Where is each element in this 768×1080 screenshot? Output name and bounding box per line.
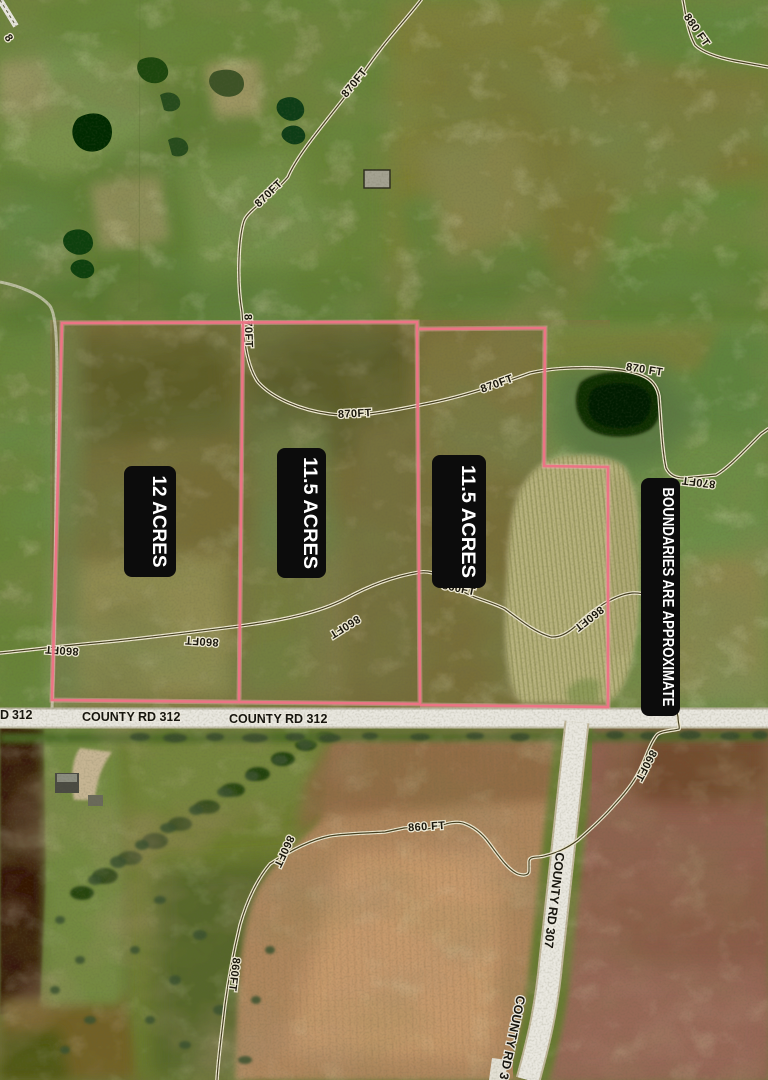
svg-text:BOUNDARIES ARE APPROXIMATE: BOUNDARIES ARE APPROXIMATE xyxy=(659,488,676,707)
svg-text:11.5 ACRES: 11.5 ACRES xyxy=(299,457,320,569)
svg-text:12 ACRES: 12 ACRES xyxy=(148,476,170,568)
svg-text:11.5 ACRES: 11.5 ACRES xyxy=(457,465,478,578)
